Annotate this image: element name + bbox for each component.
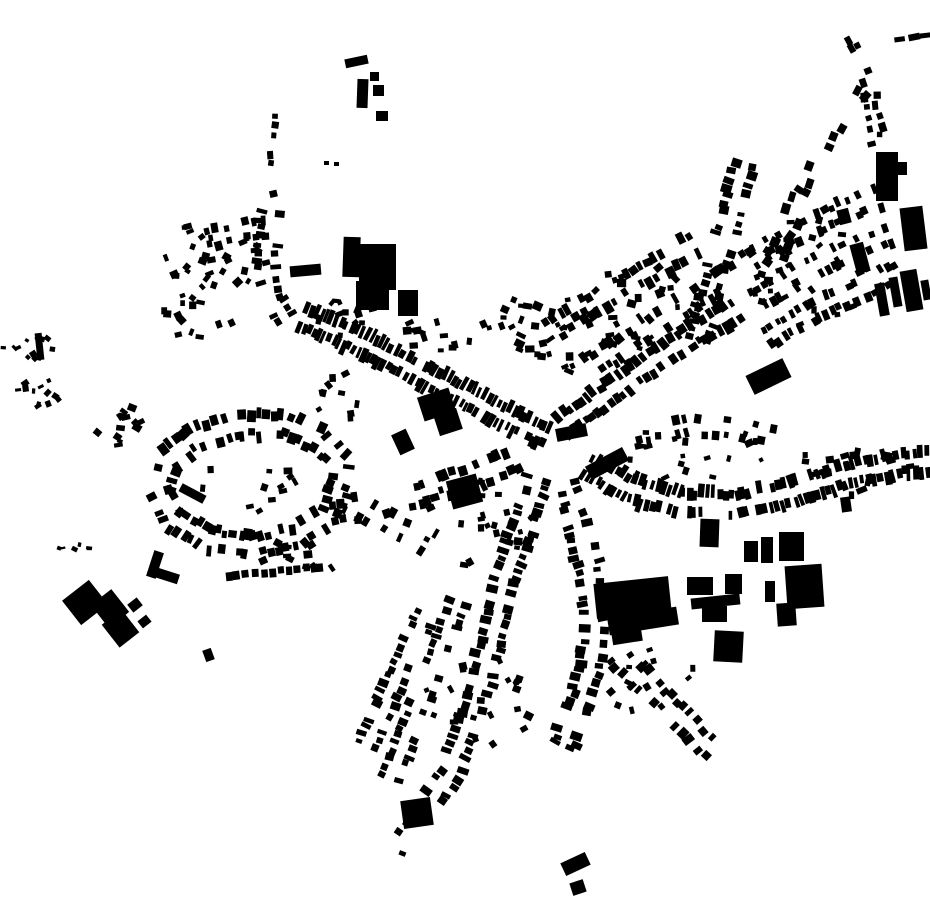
town-figure-ground-map (0, 0, 930, 924)
map-background (0, 0, 930, 924)
map-stage (0, 0, 930, 924)
